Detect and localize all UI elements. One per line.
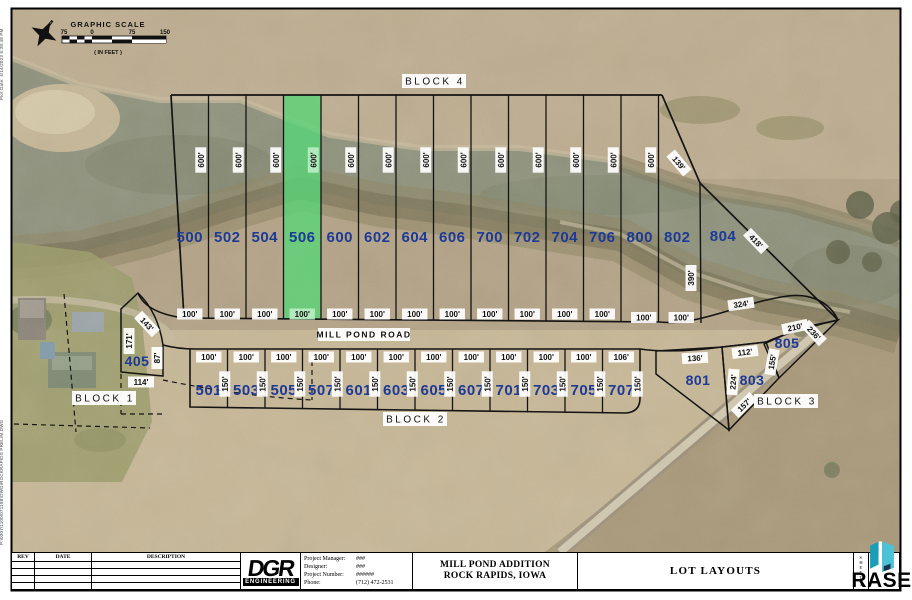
svg-text:150': 150' <box>558 376 567 391</box>
road-label: MILL POND ROAD <box>317 328 412 341</box>
svg-text:600': 600' <box>197 152 206 167</box>
dim-label: 100' <box>196 352 221 363</box>
svg-text:75: 75 <box>129 30 136 36</box>
lot-number-600: 600 <box>326 229 353 246</box>
dim-label: 224' <box>726 369 739 396</box>
dim-label: 87' <box>152 347 163 369</box>
svg-text:150': 150' <box>483 376 492 391</box>
lot-number-603: 603 <box>383 382 410 399</box>
svg-text:BLOCK 3: BLOCK 3 <box>757 397 817 408</box>
dim-label: 100' <box>309 352 334 363</box>
dim-label: 100' <box>459 352 484 363</box>
svg-text:150': 150' <box>258 376 267 391</box>
svg-text:150': 150' <box>333 376 342 391</box>
sheet-title: LOT LAYOUTS <box>578 553 854 589</box>
lot-number-604: 604 <box>401 229 428 246</box>
lot-number-602: 602 <box>364 229 391 246</box>
lot-number-801: 801 <box>686 372 711 388</box>
project-title: MILL POND ADDITION ROCK RAPIDS, IOWA <box>413 553 578 589</box>
svg-text:600': 600' <box>497 152 506 167</box>
dim-label: 600' <box>308 147 319 172</box>
svg-text:100': 100' <box>539 353 554 362</box>
svg-text:100': 100' <box>332 310 347 319</box>
svg-text:100': 100' <box>276 353 291 362</box>
lot-number-802: 802 <box>664 229 691 246</box>
svg-text:600': 600' <box>459 152 468 167</box>
svg-text:100': 100' <box>182 310 197 319</box>
svg-text:100': 100' <box>636 314 651 323</box>
dim-label: 171' <box>124 328 135 354</box>
project-info-row: Phone:(712) 472-2531 <box>304 580 409 586</box>
svg-text:150: 150 <box>160 30 171 36</box>
dim-label: 100' <box>384 352 409 363</box>
revision-table: REV DATE DESCRIPTION <box>12 553 241 589</box>
rase-logo-text: RASE <box>851 571 911 591</box>
plat-drawing-canvas: BLOCK 4 BLOCK 1 BLOCK 2 BLOCK 3 MILL PON… <box>0 0 912 600</box>
file-path-note: P:\0307\1100\07110B\DWG\ROCKRAPIDS PRELI… <box>0 420 4 545</box>
dim-label: 600' <box>233 147 244 172</box>
title-block: REV DATE DESCRIPTION DGR ENGINEERING Pro… <box>11 552 900 590</box>
plot-date-note: Plot Date: 4/14/2023 5:38:48 PM <box>0 29 4 101</box>
project-title-line2: ROCK RAPIDS, IOWA <box>444 571 546 582</box>
dim-label: 100' <box>402 309 427 320</box>
lot-number-803: 803 <box>740 372 765 388</box>
svg-text:100': 100' <box>201 353 216 362</box>
svg-text:100': 100' <box>407 310 422 319</box>
scale-bar <box>62 36 166 43</box>
svg-text:171': 171' <box>125 333 134 348</box>
svg-text:150': 150' <box>446 376 455 391</box>
dim-label: 136' <box>682 352 709 364</box>
svg-text:600': 600' <box>647 152 656 167</box>
svg-text:600': 600' <box>272 152 281 167</box>
dim-label: 150' <box>219 371 230 396</box>
svg-text:100': 100' <box>595 310 610 319</box>
dim-label: 150' <box>369 371 380 396</box>
svg-text:GRAPHIC SCALE: GRAPHIC SCALE <box>70 20 145 29</box>
dim-label: 150' <box>482 371 493 396</box>
svg-text:100': 100' <box>257 310 272 319</box>
block3-label: BLOCK 3 <box>754 394 818 408</box>
project-info-row: Designer:### <box>304 564 409 570</box>
lot-number-601: 601 <box>345 382 372 399</box>
lot-number-805: 805 <box>775 335 800 351</box>
description-header: DESCRIPTION <box>92 553 240 561</box>
dim-label: 100' <box>252 309 277 320</box>
svg-text:600': 600' <box>347 152 356 167</box>
lot-number-701: 701 <box>495 382 522 399</box>
lot-number-705: 705 <box>570 382 597 399</box>
project-info-row: Project Manager:### <box>304 556 409 562</box>
dim-label: 390' <box>686 265 697 291</box>
svg-text:600': 600' <box>422 152 431 167</box>
svg-text:150': 150' <box>371 376 380 391</box>
dim-label: 600' <box>533 147 544 172</box>
svg-text:100': 100' <box>295 310 310 319</box>
lot-number-505: 505 <box>270 382 297 399</box>
date-header: DATE <box>35 553 92 561</box>
dim-label: 150' <box>257 371 268 396</box>
revision-row <box>12 583 240 589</box>
lot-number-504: 504 <box>251 229 278 246</box>
svg-text:112': 112' <box>737 347 753 358</box>
svg-text:100': 100' <box>370 310 385 319</box>
dim-label: 100' <box>234 352 259 363</box>
dim-label: 150' <box>294 371 305 396</box>
dim-label: 150' <box>407 371 418 396</box>
svg-text:100': 100' <box>482 310 497 319</box>
dim-label: 100' <box>590 309 615 320</box>
svg-text:150': 150' <box>296 376 305 391</box>
block4-label: BLOCK 4 <box>402 74 466 88</box>
dim-label: 100' <box>669 312 694 323</box>
dim-label: 150' <box>632 371 643 396</box>
dim-label: 100' <box>346 352 371 363</box>
dim-label: 100' <box>215 309 240 320</box>
lot-number-500: 500 <box>176 229 203 246</box>
lot-number-502: 502 <box>214 229 241 246</box>
dim-label: 100' <box>327 309 352 320</box>
svg-text:BLOCK 1: BLOCK 1 <box>75 394 135 405</box>
rev-header: REV <box>12 553 35 561</box>
lot-number-607: 607 <box>458 382 485 399</box>
svg-text:MILL POND ROAD: MILL POND ROAD <box>317 330 412 340</box>
dim-label: 100' <box>290 309 315 320</box>
svg-text:BLOCK 2: BLOCK 2 <box>386 415 446 426</box>
aerial-photo <box>4 9 912 552</box>
project-info-row: Project Number:###### <box>304 572 409 578</box>
svg-text:100': 100' <box>351 353 366 362</box>
svg-text:100': 100' <box>576 353 591 362</box>
dim-label: 100' <box>177 309 202 320</box>
dim-label: 100' <box>271 352 296 363</box>
lot-number-700: 700 <box>476 229 503 246</box>
svg-text:600': 600' <box>534 152 543 167</box>
svg-text:136': 136' <box>687 354 703 364</box>
svg-text:600': 600' <box>234 152 243 167</box>
dim-label: 100' <box>477 309 502 320</box>
dgr-logo: DGR ENGINEERING <box>241 553 301 589</box>
svg-text:( IN FEET ): ( IN FEET ) <box>94 50 122 56</box>
highlighted-lot-506 <box>284 95 322 320</box>
svg-text:106': 106' <box>614 353 629 362</box>
dim-label: 600' <box>608 147 619 172</box>
svg-text:100': 100' <box>501 353 516 362</box>
svg-text:150': 150' <box>521 376 530 391</box>
lot-number-501: 501 <box>195 382 222 399</box>
dim-label: 150' <box>594 371 605 396</box>
dim-label: 100' <box>515 309 540 320</box>
dim-label: 600' <box>270 147 281 172</box>
lot-number-800: 800 <box>626 229 653 246</box>
svg-text:100': 100' <box>445 310 460 319</box>
lot-number-707: 707 <box>608 382 635 399</box>
svg-text:100': 100' <box>220 310 235 319</box>
dim-label: 150' <box>557 371 568 396</box>
svg-text:100': 100' <box>426 353 441 362</box>
lot-number-405: 405 <box>125 353 150 369</box>
block2-label: BLOCK 2 <box>383 412 447 426</box>
lot-number-507: 507 <box>308 382 335 399</box>
svg-text:600': 600' <box>309 152 318 167</box>
project-title-line1: MILL POND ADDITION <box>440 560 550 571</box>
svg-text:600': 600' <box>572 152 581 167</box>
svg-text:100': 100' <box>557 310 572 319</box>
svg-text:100': 100' <box>464 353 479 362</box>
svg-text:390': 390' <box>687 270 696 285</box>
dim-label: 100' <box>552 309 577 320</box>
dim-label: 150' <box>332 371 343 396</box>
svg-text:224': 224' <box>728 374 738 390</box>
svg-text:100': 100' <box>520 310 535 319</box>
lot-number-704: 704 <box>551 229 578 246</box>
dim-label: 600' <box>345 147 356 172</box>
dim-label: 600' <box>420 147 431 172</box>
dim-label: 114' <box>128 377 154 388</box>
dim-label: 100' <box>440 309 465 320</box>
dim-label: 100' <box>631 312 656 323</box>
dim-label: 600' <box>383 147 394 172</box>
dim-label: 600' <box>458 147 469 172</box>
svg-text:150': 150' <box>221 376 230 391</box>
lot-number-503: 503 <box>233 382 260 399</box>
dim-label: 600' <box>495 147 506 172</box>
svg-text:BLOCK 4: BLOCK 4 <box>405 77 465 88</box>
dim-label: 100' <box>534 352 559 363</box>
dim-label: 106' <box>609 352 634 363</box>
lot-number-706: 706 <box>589 229 616 246</box>
plat-sheet: BLOCK 4 BLOCK 1 BLOCK 2 BLOCK 3 MILL PON… <box>0 0 912 600</box>
dim-label: 150' <box>519 371 530 396</box>
svg-text:600': 600' <box>384 152 393 167</box>
dim-label: 100' <box>365 309 390 320</box>
svg-text:100': 100' <box>674 314 689 323</box>
svg-text:114': 114' <box>134 378 149 387</box>
dim-label: 100' <box>421 352 446 363</box>
svg-text:100': 100' <box>239 353 254 362</box>
dgr-logo-text: DGR <box>247 558 295 578</box>
dim-label: 100' <box>571 352 596 363</box>
dim-label: 600' <box>645 147 656 172</box>
dim-label: 150' <box>444 371 455 396</box>
lot-number-605: 605 <box>420 382 447 399</box>
revision-row <box>12 576 240 583</box>
dim-label: 600' <box>570 147 581 172</box>
svg-text:75: 75 <box>61 30 68 36</box>
revision-row <box>12 562 240 569</box>
dim-label: 100' <box>496 352 521 363</box>
svg-text:87': 87' <box>153 353 162 364</box>
svg-text:150': 150' <box>408 376 417 391</box>
lot-number-804: 804 <box>710 228 737 245</box>
lot-number-703: 703 <box>533 382 560 399</box>
rase-watermark: RASE <box>851 537 912 599</box>
block1-label: BLOCK 1 <box>72 391 136 405</box>
svg-text:150': 150' <box>596 376 605 391</box>
svg-text:100': 100' <box>389 353 404 362</box>
dim-label: 600' <box>195 147 206 172</box>
project-info: Project Manager:###Designer:###Project N… <box>301 553 413 589</box>
svg-text:600': 600' <box>609 152 618 167</box>
svg-text:100': 100' <box>314 353 329 362</box>
lot-number-702: 702 <box>514 229 541 246</box>
revision-row <box>12 569 240 576</box>
lot-number-606: 606 <box>439 229 466 246</box>
lot-number-506: 506 <box>289 229 316 246</box>
svg-text:150': 150' <box>633 376 642 391</box>
